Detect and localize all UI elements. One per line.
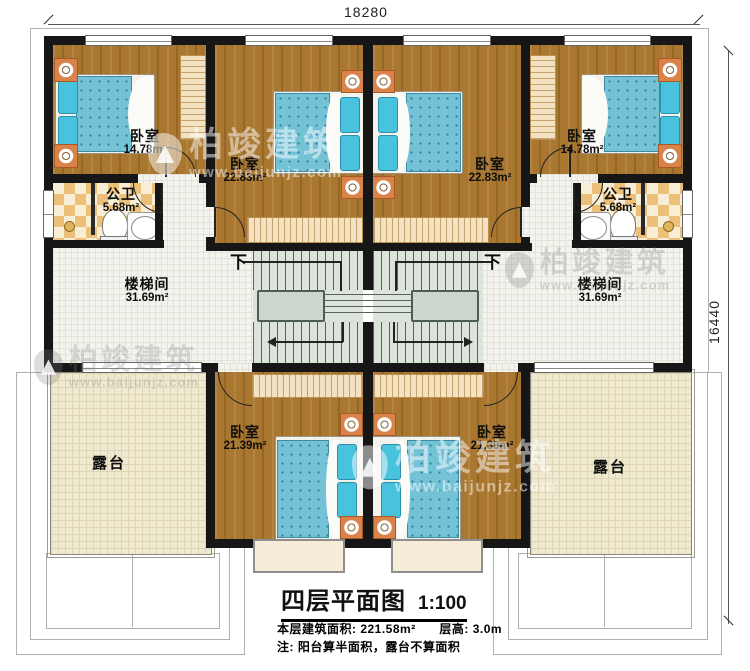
wall-party-lower [363, 322, 373, 548]
nightstand [658, 144, 682, 168]
plan-area-note: 本层建筑面积: 221.58m² 层高: 3.0m [277, 620, 502, 637]
plan-title: 四层平面图 [281, 581, 406, 616]
nightstand [341, 70, 364, 93]
wall-bedroom-br-bottom [363, 539, 391, 548]
bed-pillow [337, 444, 357, 480]
window-bathroom-right [682, 190, 693, 238]
stair-flight-upper-left [253, 248, 363, 290]
nightstand [54, 144, 78, 168]
bed-pillow [381, 444, 401, 480]
stair-guide-line [243, 261, 340, 263]
stair-rail-line [325, 300, 411, 301]
dimension-top-line [48, 24, 700, 25]
bed-mattress [277, 440, 329, 538]
stair-rail-line [325, 312, 411, 313]
bed-pillow [378, 97, 398, 133]
stair-landing-left [257, 290, 325, 322]
room-label-bedroom-tr: 卧室 14.78m² [542, 128, 622, 157]
floor-drain-icon [663, 221, 674, 232]
wall-bedroom-bl-bottom [206, 539, 253, 548]
wall-party-upper [363, 36, 373, 290]
door-leaf [161, 183, 163, 213]
room-label-bedroom-tl: 卧室 14.78m² [105, 128, 185, 157]
nightstand [54, 58, 78, 82]
stair-flight-upper-right [373, 248, 483, 290]
lower-roof-divider-right [604, 553, 605, 627]
room-label-terrace-right: 露台 [593, 456, 627, 477]
room-label-stair-right: 楼梯间 31.69m² [560, 276, 640, 305]
bed-pillow [378, 135, 398, 171]
dimension-top-value: 18280 [344, 4, 388, 20]
lower-roof-panel-left [46, 553, 220, 629]
stair-guide-line [342, 322, 344, 342]
door-leaf [520, 207, 522, 237]
wardrobe [252, 374, 363, 398]
door-leaf [573, 183, 575, 213]
room-label-terrace-left: 露台 [92, 452, 126, 473]
stair-guide-line [393, 322, 395, 342]
wall-interior [206, 363, 218, 372]
wall-interior [252, 363, 366, 372]
wall-interior [598, 174, 692, 183]
wall-bedroom-br-bottom [483, 539, 530, 548]
sink-basin-icon [579, 216, 607, 240]
stair-arrowhead-right [464, 337, 478, 347]
stair-guide-line [340, 261, 342, 291]
wall-bedroom-br-right [521, 363, 530, 548]
dimension-tick [44, 15, 54, 25]
bed-mattress [407, 440, 459, 538]
room-label-bedroom-mr: 卧室 22.83m² [450, 156, 530, 185]
nightstand [658, 58, 682, 82]
stair-guide-line [396, 261, 493, 263]
stair-guide-line [395, 261, 397, 291]
room-label-bedroom-br: 卧室 21.39m² [447, 424, 537, 453]
wall-bedroom-bl-left [206, 363, 215, 548]
bed-pillow [340, 97, 360, 133]
window-bathroom-left [43, 190, 54, 238]
room-label-bedroom-bl: 卧室 21.39m² [200, 424, 290, 453]
window [403, 35, 491, 46]
plan-height-note: 层高: 3.0m [439, 622, 502, 636]
door-gap-patch [218, 363, 252, 372]
bed-blanket [326, 93, 341, 172]
plan-scale: 1:100 [418, 593, 467, 615]
nightstand [341, 176, 364, 199]
wall-interior [370, 363, 484, 372]
room-label-bath-left: 公卫 5.68m² [84, 186, 158, 215]
window [245, 35, 333, 46]
nightstand [340, 516, 363, 539]
window [564, 35, 651, 46]
lower-roof-panel-right [518, 553, 692, 629]
door-leaf [214, 207, 216, 237]
sliding-door-terrace-right [534, 362, 654, 373]
bed-pillow [340, 135, 360, 171]
bay-window-left [253, 539, 345, 573]
bed-pillow [337, 482, 357, 518]
floor-plan-canvas: 18280 16440 [0, 0, 750, 671]
stair-down-label-right: 下 [484, 248, 501, 273]
wardrobe [247, 217, 363, 243]
nightstand [373, 516, 396, 539]
wardrobe [373, 374, 484, 398]
sliding-door-terrace-left [82, 362, 202, 373]
dimension-right-line [728, 50, 729, 624]
dimension-tick [694, 15, 704, 25]
window [85, 35, 172, 46]
room-label-bedroom-ml: 卧室 22.83m² [205, 156, 285, 185]
bed-pillow [660, 80, 680, 114]
room-label-bath-right: 公卫 5.68m² [581, 186, 655, 215]
bed-pillow [58, 80, 78, 114]
floor-drain-icon [64, 221, 75, 232]
stair-rail-line [325, 306, 411, 307]
nightstand [340, 413, 363, 436]
wall-interior [518, 363, 530, 372]
stair-direction-line [393, 341, 463, 343]
door-gap-patch [484, 363, 518, 372]
stair-landing-right [411, 290, 479, 322]
wall-interior [44, 174, 138, 183]
plan-note: 注: 阳台算半面积，露台不算面积 [277, 638, 460, 655]
wall-interior [370, 243, 532, 251]
bay-window-right [391, 539, 483, 573]
stair-down-label-left: 下 [230, 248, 247, 273]
nightstand [372, 70, 395, 93]
terrace-left-floor [50, 372, 212, 555]
title-block: 四层平面图 1:100 [281, 581, 467, 622]
wall-interior [44, 240, 164, 248]
wall-interior [572, 240, 692, 248]
stair-rail-line [325, 294, 411, 295]
wardrobe [373, 217, 489, 243]
stair-direction-line [273, 341, 343, 343]
bed-pillow [381, 482, 401, 518]
lower-roof-divider-left [132, 553, 133, 627]
room-label-stair-left: 楼梯间 31.69m² [107, 276, 187, 305]
nightstand [372, 176, 395, 199]
stair-arrowhead-left [262, 337, 276, 347]
nightstand [373, 413, 396, 436]
